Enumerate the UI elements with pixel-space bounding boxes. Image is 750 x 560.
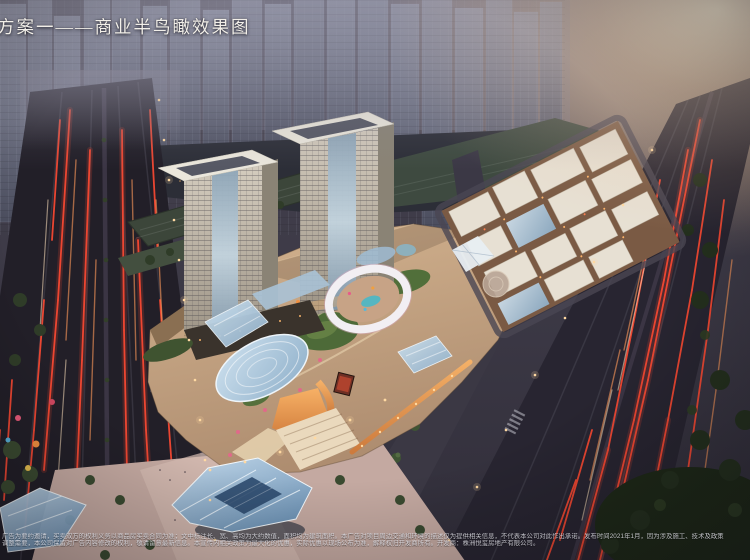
aerial-rendering-scene — [0, 0, 750, 560]
disclaimer-line-1: 广告为要约邀请，买卖双方的权利义务以商品房买卖合同为准；文中标注长、宽、高均为大… — [2, 533, 750, 540]
disclaimer-line-2: 调整需要，本公司保留对广告内容修改的权利，敬请留意最新信息。本宣传内相关政策为最… — [2, 540, 750, 547]
vignette — [0, 0, 750, 560]
rendering-canvas: 方案一——商业半鸟瞰效果图 广告为要约邀请，买卖双方的权利义务以商品房买卖合同为… — [0, 0, 750, 560]
plan-title: 方案一——商业半鸟瞰效果图 — [0, 14, 251, 39]
legal-disclaimer: 广告为要约邀请，买卖双方的权利义务以商品房买卖合同为准；文中标注长、宽、高均为大… — [2, 533, 750, 547]
